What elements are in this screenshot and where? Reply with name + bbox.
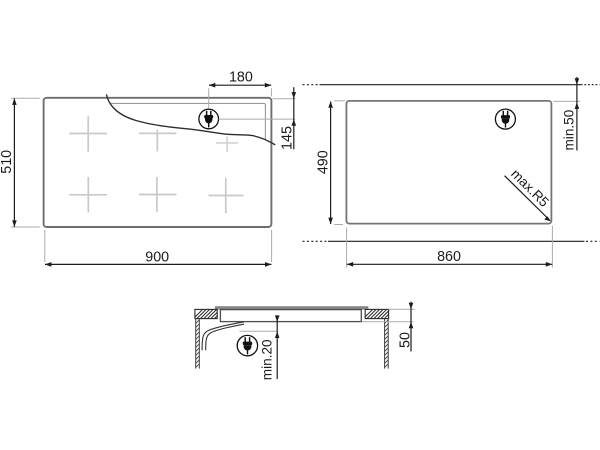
svg-text:490: 490 [315,150,331,174]
svg-text:145: 145 [279,126,295,150]
svg-text:180: 180 [229,69,253,85]
svg-text:min.20: min.20 [260,339,275,380]
svg-text:min.50: min.50 [561,109,576,150]
svg-text:860: 860 [437,249,461,265]
svg-text:900: 900 [145,249,169,265]
svg-text:510: 510 [0,150,15,174]
svg-text:50: 50 [398,332,414,348]
